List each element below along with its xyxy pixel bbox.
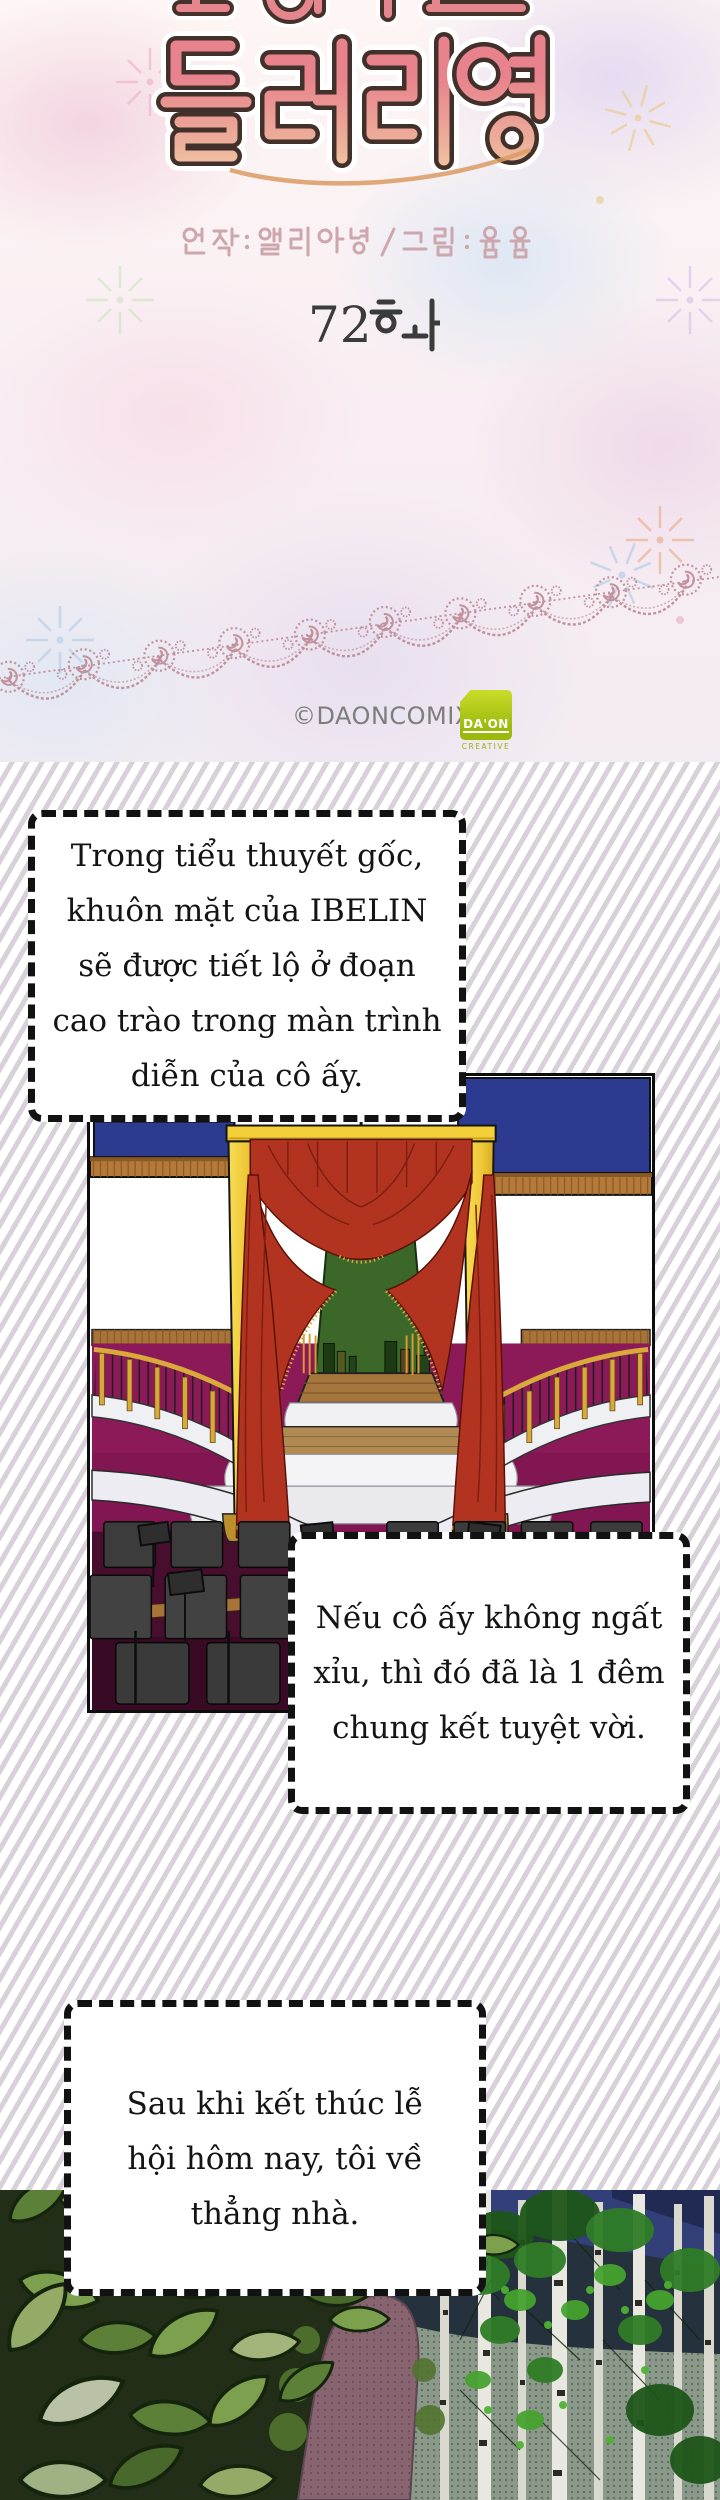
logo-wordmark: DA'ON — [463, 717, 509, 733]
bubble-line: thẳng nhà. — [191, 2187, 360, 2242]
bubble-line: hội hôm nay, tôi về — [127, 2132, 422, 2187]
publisher-logo: DA'ON — [460, 690, 512, 740]
bubble-line: xỉu, thì đó đã là 1 đêm — [313, 1646, 664, 1701]
episode-digits: 72 — [308, 296, 372, 354]
speech-bubble-2: Nếu cô ấy không ngất xỉu, thì đó đã là 1… — [288, 1532, 690, 1814]
logo-subtitle: CREATIVE — [450, 742, 522, 751]
copyright-text: ©DAONCOMIX — [292, 702, 462, 730]
bubble-line: chung kết tuyệt vời. — [332, 1701, 646, 1756]
watercolor-header: 72 — [0, 0, 720, 770]
bubble-line: khuôn mặt của IBELIN — [67, 884, 428, 939]
bubble-line: Sau khi kết thúc lễ — [127, 2077, 424, 2132]
bubble-line: diễn của cô ấy. — [131, 1049, 363, 1104]
bubble-line: Trong tiểu thuyết gốc, — [71, 829, 423, 884]
title-top-cropped-glyphs — [180, 0, 522, 16]
speech-bubble-1: Trong tiểu thuyết gốc, khuôn mặt của IBE… — [28, 810, 466, 1122]
webtoon-page: 72 — [0, 0, 720, 2500]
bubble-line: sẽ được tiết lộ ở đoạn — [78, 939, 415, 994]
bubble-line: Nếu cô ấy không ngất — [316, 1591, 663, 1646]
bubble-line: cao trào trong màn trình — [52, 994, 441, 1049]
speech-bubble-3: Sau khi kết thúc lễ hội hôm nay, tôi về … — [64, 2000, 486, 2296]
